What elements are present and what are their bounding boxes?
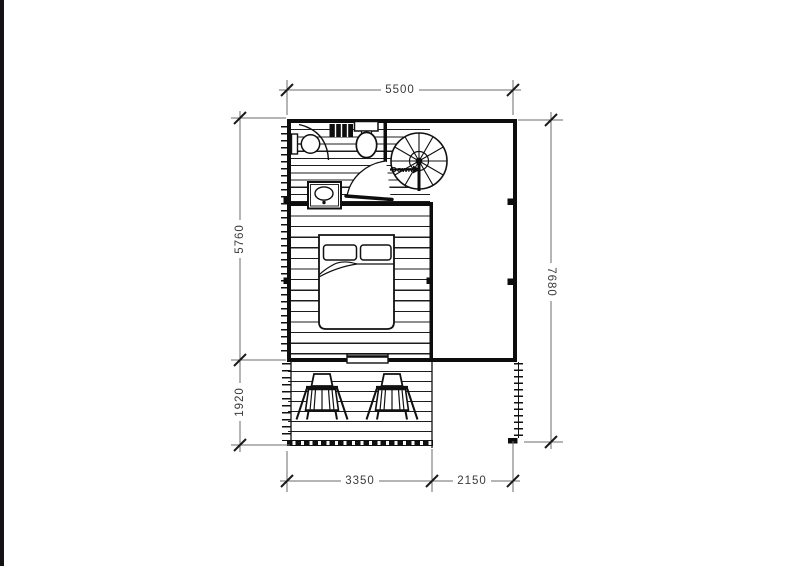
toilet-fixture bbox=[355, 122, 379, 158]
spiral-staircase: Down bbox=[390, 133, 447, 191]
pillow-left bbox=[324, 245, 357, 260]
bathroom-partition-wall bbox=[384, 123, 388, 162]
top-wall bbox=[287, 119, 517, 123]
deck-chair-left bbox=[297, 374, 348, 420]
dim-label-deck-width: 3350 bbox=[345, 475, 375, 487]
stair-down-label: Down bbox=[391, 165, 413, 174]
dim-label-overall-height: 7680 bbox=[545, 267, 557, 297]
sink-fixture bbox=[292, 125, 329, 161]
dim-label-right-offset: 2150 bbox=[457, 475, 487, 487]
floor-plan-linework: Down bbox=[0, 0, 800, 566]
right-wall bbox=[513, 119, 517, 362]
stair-center-dot bbox=[416, 158, 423, 165]
wall-joint-nubs bbox=[284, 198, 515, 286]
bed bbox=[319, 235, 394, 329]
deck-door-threshold bbox=[347, 354, 388, 363]
pillow-right bbox=[361, 245, 392, 260]
left-wall bbox=[287, 119, 291, 362]
deck-chair-right bbox=[367, 374, 418, 420]
bottom-wall bbox=[287, 358, 517, 362]
bedroom-door bbox=[346, 161, 392, 200]
vanity-basin bbox=[308, 182, 341, 209]
towel-radiator bbox=[330, 124, 354, 137]
dim-label-deck-height: 1920 bbox=[234, 387, 246, 417]
dim-label-overall-width: 5500 bbox=[385, 84, 415, 96]
dim-label-upper-height: 5760 bbox=[234, 224, 246, 254]
floor-plan-canvas: Down bbox=[0, 0, 800, 566]
